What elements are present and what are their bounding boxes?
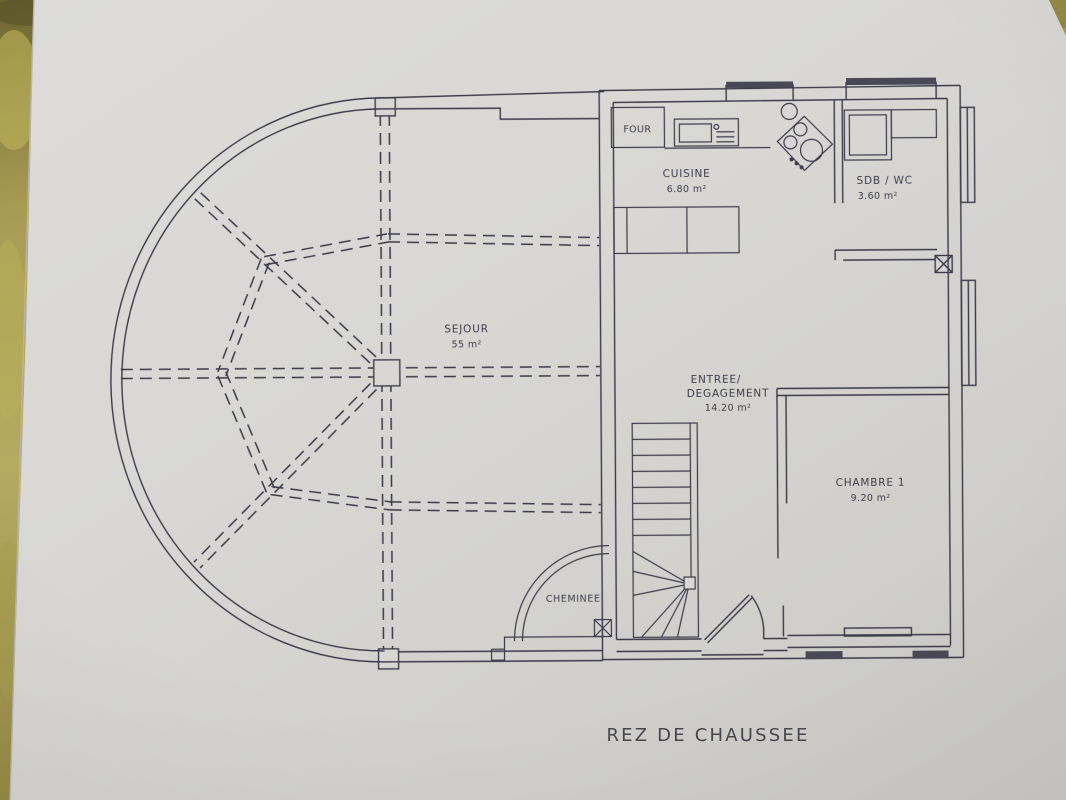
label-cheminee: CHEMINEE <box>546 594 601 605</box>
label-sejour: SEJOUR <box>444 323 489 335</box>
photo-of-floor-plan: FOUR CUISINE 6.80 m² SDB / WC 3.60 m² SE… <box>0 0 1066 800</box>
label-cuisine-area: 6.80 m² <box>667 184 707 195</box>
label-chambre-area: 9.20 m² <box>851 493 891 504</box>
label-sdb-area: 3.60 m² <box>858 191 898 202</box>
label-sejour-area: 55 m² <box>452 339 482 350</box>
label-cuisine: CUISINE <box>663 168 711 180</box>
label-entree-area: 14.20 m² <box>705 403 752 414</box>
label-chambre: CHAMBRE 1 <box>836 477 906 489</box>
label-entree-1: ENTREE/ <box>691 374 742 386</box>
paper-sheet <box>0 0 1066 800</box>
label-four: FOUR <box>623 124 651 135</box>
plan-title: REZ DE CHAUSSEE <box>606 725 809 746</box>
label-entree-2: DEGAGEMENT <box>687 388 770 401</box>
label-sdb: SDB / WC <box>856 175 912 187</box>
